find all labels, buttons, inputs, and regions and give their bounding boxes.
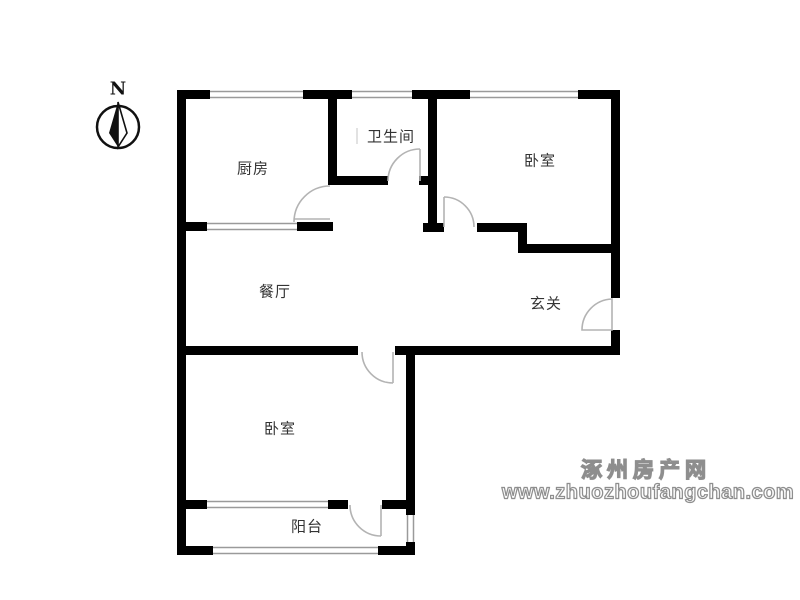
floorplan-image: N 厨房 卫生间 卧室 餐厅 玄关 卧室 阳台 涿州房产网 www.zhuozh… <box>0 0 800 600</box>
room-label-bathroom: 卫生间 <box>367 126 415 147</box>
window-balcony-right <box>407 515 415 542</box>
window-bathroom-top <box>352 91 412 99</box>
door-bathroom <box>388 149 420 181</box>
window-bedroom-south <box>207 501 328 509</box>
room-label-balcony: 阳台 <box>291 516 323 537</box>
window-kitchen-bottom <box>207 223 297 231</box>
room-label-kitchen: 厨房 <box>237 158 269 179</box>
door-symbols <box>294 149 612 536</box>
window-kitchen-top <box>210 91 303 99</box>
watermark-url: www.zhuozhoufangchan.com <box>502 482 794 505</box>
compass-north-label: N <box>110 79 126 100</box>
window-balcony-bottom <box>213 547 378 555</box>
door-kitchen <box>294 186 330 222</box>
window-bedroom-north-top <box>470 91 578 99</box>
room-label-entry-hall: 玄关 <box>530 293 562 314</box>
door-bedroom-north <box>444 197 474 227</box>
compass-north-icon <box>97 102 139 148</box>
room-label-bedroom-north: 卧室 <box>524 150 556 171</box>
room-label-bedroom-south: 卧室 <box>264 418 296 439</box>
door-entry <box>582 299 612 330</box>
door-bedroom-south <box>362 352 393 383</box>
watermark-site-name: 涿州房产网 <box>581 454 711 484</box>
door-balcony <box>350 505 381 536</box>
room-label-dining: 餐厅 <box>259 281 291 302</box>
